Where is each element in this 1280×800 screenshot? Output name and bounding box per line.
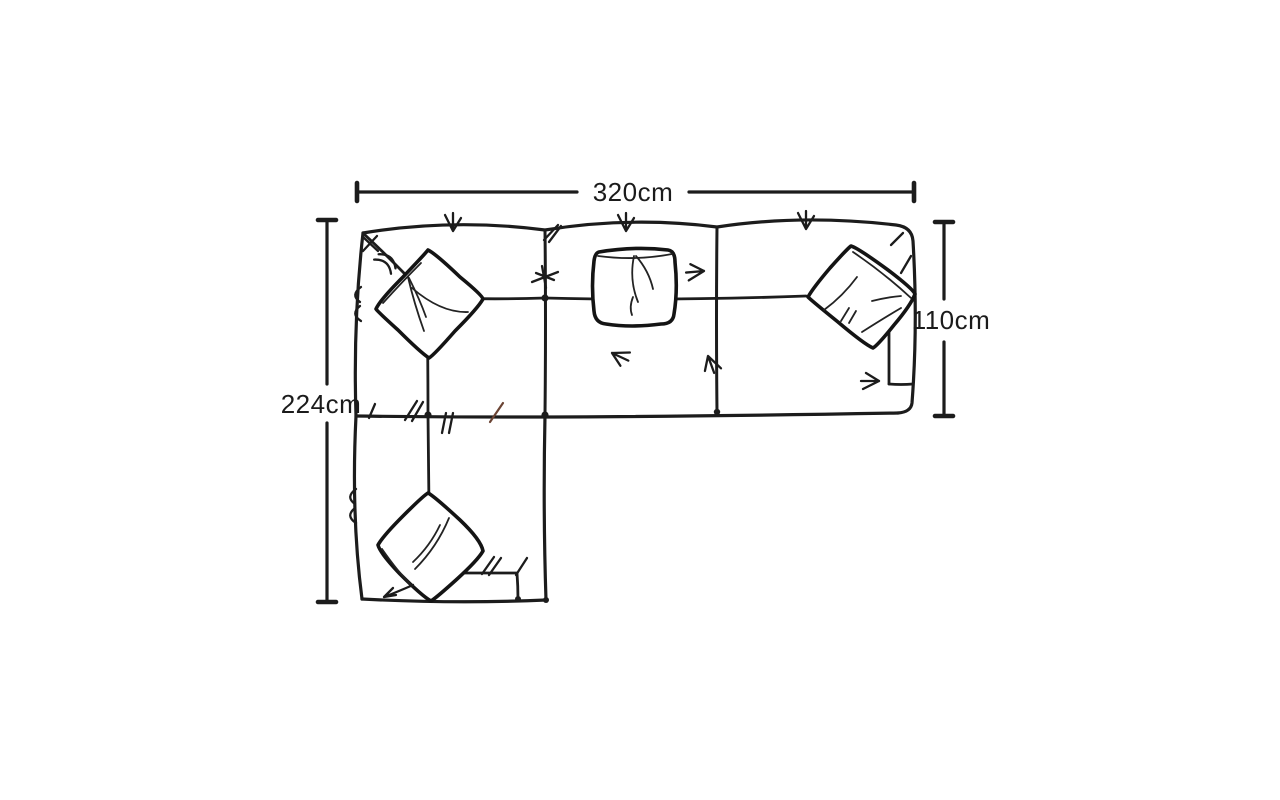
tuft-mark xyxy=(861,373,879,389)
chaise-right-edge xyxy=(544,415,546,600)
corner-pillow-outline xyxy=(376,250,483,358)
junction-dot xyxy=(541,411,548,418)
stitch-mark xyxy=(891,233,903,245)
right-depth-dimension-label: 110cm xyxy=(912,305,991,335)
fold-arrow-mark xyxy=(384,585,413,597)
right-pillow xyxy=(808,246,915,348)
dimension-right-depth: 110cm xyxy=(912,222,991,416)
tuft-mark xyxy=(445,213,461,231)
stitch-mark xyxy=(901,256,911,273)
left-depth-dimension-label: 224cm xyxy=(281,389,362,419)
diagram-canvas: 320cm 224cm 110cm xyxy=(0,0,1280,800)
junction-dot xyxy=(515,596,521,602)
chaise-pillow-outline xyxy=(378,493,483,601)
junction-dot xyxy=(424,411,431,418)
corner-pillow xyxy=(376,250,483,358)
tuft-mark xyxy=(685,263,704,281)
seat-front-line xyxy=(356,413,898,417)
width-dimension-label: 320cm xyxy=(593,177,674,207)
junction-dot xyxy=(541,294,548,301)
chaise-notch-seam xyxy=(458,573,518,600)
center-cushion xyxy=(593,248,677,326)
right-arm-inner-seam-h xyxy=(889,384,913,385)
seat-divider-1 xyxy=(545,230,546,414)
sofa-dimension-diagram: 320cm 224cm 110cm xyxy=(0,0,1280,800)
junction-dot xyxy=(543,597,549,603)
tuft-mark xyxy=(798,211,814,229)
dimension-left-depth: 224cm xyxy=(281,220,362,602)
stitch-mark xyxy=(516,558,527,575)
dimension-width: 320cm xyxy=(357,177,914,207)
tuft-mark xyxy=(700,353,721,375)
tuft-mark xyxy=(609,346,632,368)
stitch-mark xyxy=(490,403,503,422)
tuft-mark xyxy=(618,213,634,231)
chaise-pillow xyxy=(378,493,483,601)
seat-divider-2 xyxy=(717,227,718,412)
junction-dot xyxy=(714,409,720,415)
